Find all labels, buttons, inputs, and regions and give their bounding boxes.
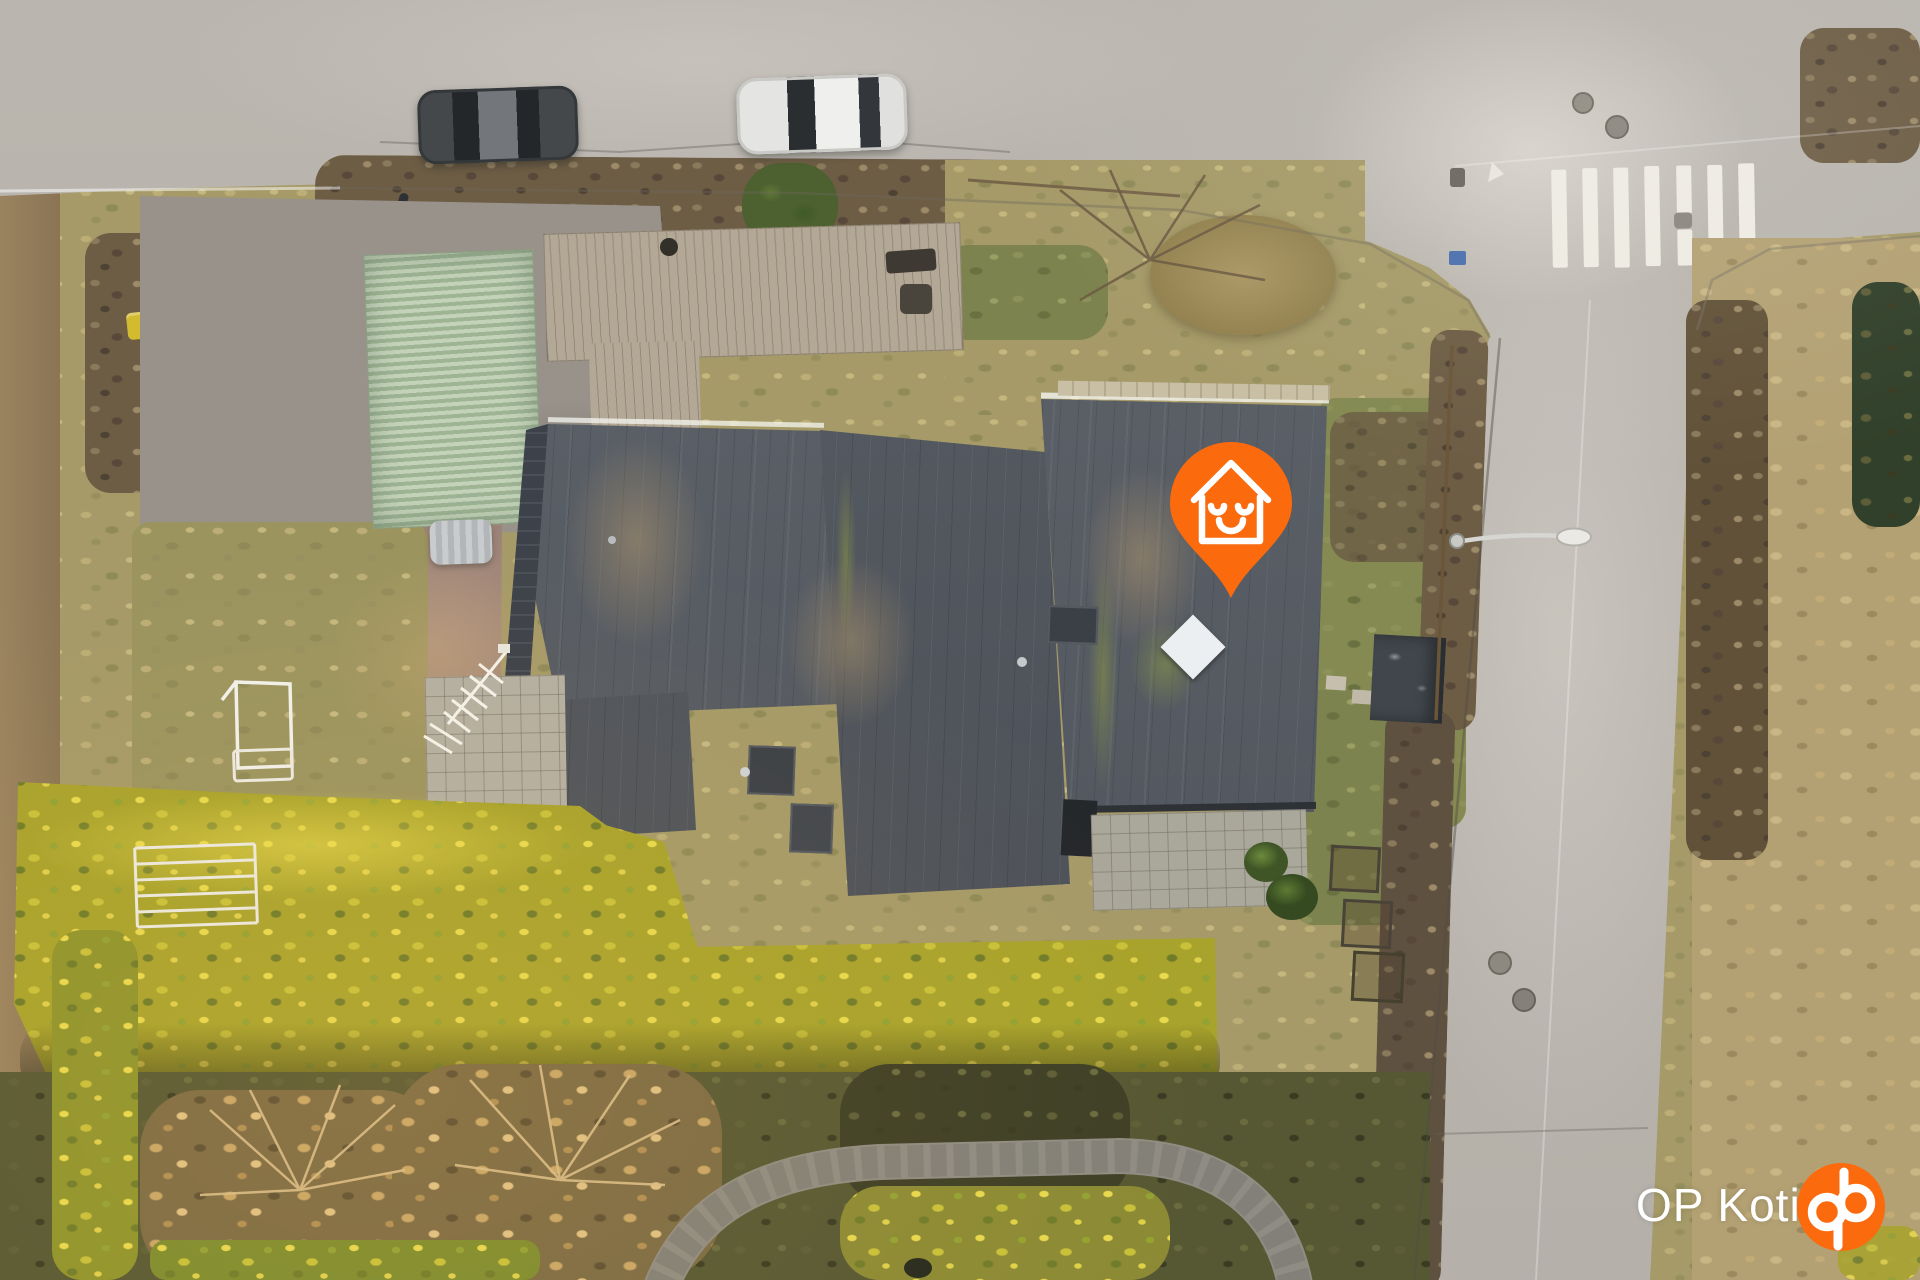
- parked-car-white: [736, 73, 909, 155]
- garden-bed-frame: [1351, 951, 1406, 1004]
- deck-grill: [660, 238, 678, 256]
- dry-mound: [1150, 215, 1336, 335]
- south-shrub-row: [150, 1240, 540, 1280]
- roof-hatch: [1047, 605, 1098, 645]
- garden-shed-roof: [1370, 634, 1446, 724]
- crosswalk-stripe: [1551, 170, 1568, 268]
- crosswalk-stripe: [1613, 167, 1630, 267]
- northeast-brush: [1800, 28, 1920, 163]
- deck-table: [900, 284, 932, 314]
- roof-hatch: [747, 745, 796, 796]
- op-logo: [1796, 1162, 1888, 1254]
- path-island-shrubs: [840, 1186, 1170, 1280]
- manhole-small: [1674, 212, 1692, 228]
- roof-hatch: [789, 803, 834, 853]
- round-bush: [1266, 874, 1318, 920]
- parked-car-dark: [417, 85, 579, 165]
- east-dark-trees: [1852, 282, 1920, 527]
- garden-bed-frame: [1341, 899, 1393, 950]
- roof-sun-patch: [566, 436, 706, 646]
- crosswalk-stripe-split-top: [1676, 165, 1692, 213]
- location-pin: [1162, 434, 1302, 606]
- crosswalk-stripe: [1582, 168, 1599, 267]
- white-storage-box: [429, 519, 492, 565]
- west-border-hedge: [52, 930, 138, 1280]
- brand-wordmark: OP Koti: [1636, 1178, 1801, 1232]
- crosswalk-stripe: [1644, 166, 1661, 266]
- dark-shrubs: [840, 1064, 1130, 1204]
- garage-green-roof: [363, 249, 542, 529]
- yellow-hedge-sunlit-top: [30, 790, 590, 900]
- stepping-stone: [1352, 689, 1373, 704]
- garden-bed-frame: [1329, 845, 1381, 894]
- roof-moss-streak: [836, 470, 856, 640]
- deck-bench: [885, 248, 936, 273]
- back-lawn-green: [938, 245, 1108, 340]
- roof-moss-streak: [1088, 560, 1118, 790]
- east-verge-hedge: [1686, 300, 1768, 860]
- aerial-photo: OP Koti: [0, 0, 1920, 1280]
- crosswalk-stripe-split-bottom: [1677, 229, 1693, 265]
- stepping-stone: [1326, 675, 1347, 690]
